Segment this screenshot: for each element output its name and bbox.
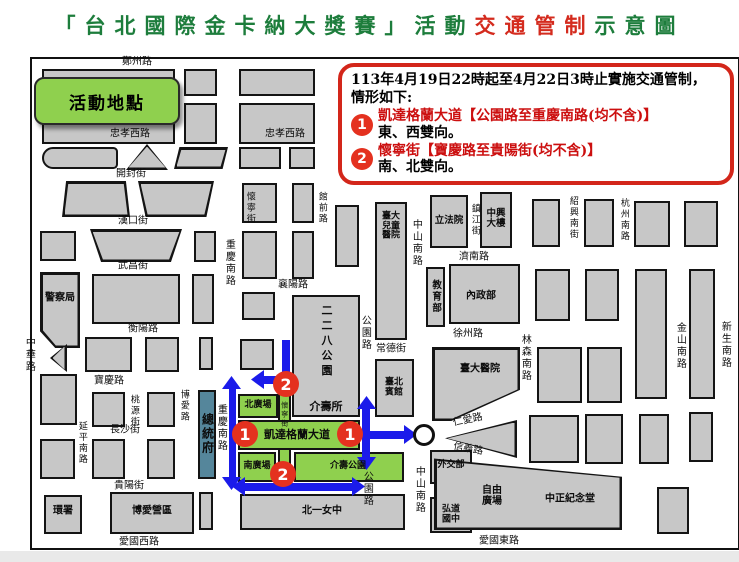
road-label: 金山南路 — [674, 322, 685, 370]
road-label: 博愛路 — [178, 390, 188, 423]
city-block — [40, 374, 77, 425]
city-block — [657, 487, 689, 534]
road-label: 桃源街 — [128, 395, 138, 428]
title-suffix: 示意圖 — [595, 13, 685, 38]
road-label: 寶慶路 — [94, 377, 124, 388]
building-label: 中正紀念堂 — [545, 495, 595, 506]
road-label: 懷寧街 — [280, 402, 288, 429]
road-label: 中山南路 — [413, 466, 424, 514]
city-block — [199, 492, 213, 530]
road-label: 徐州路 — [453, 330, 483, 341]
city-block — [535, 269, 570, 321]
building-label: 介壽公園 — [330, 462, 366, 472]
closure-arrow-south-shaft — [244, 483, 354, 491]
roundabout-icon — [413, 424, 435, 446]
city-block — [585, 269, 619, 321]
city-block — [587, 347, 622, 403]
page-title: 「台北國際金卡納大獎賽」活動交通管制示意圖 — [0, 10, 739, 40]
building-label: 中興大樓 — [483, 209, 509, 230]
city-block — [585, 414, 623, 464]
road-label: 貴陽街 — [114, 482, 144, 493]
notice-item-2-detail: 南、北雙向。 — [378, 159, 601, 176]
building-label: 內政部 — [466, 292, 496, 303]
city-block — [184, 69, 217, 96]
badge-1-icon: 1 — [351, 114, 373, 136]
city-block — [147, 392, 175, 427]
city-block — [138, 181, 214, 217]
road-label: 公園路 — [361, 471, 372, 507]
city-block — [145, 337, 179, 372]
road-label: 凱達格蘭大道 — [264, 429, 330, 441]
city-block — [239, 147, 281, 169]
window-bottom-strip — [0, 551, 739, 562]
city-block — [174, 147, 228, 169]
road-label: 鎮江街 — [469, 204, 479, 237]
building-label: 北一女中 — [302, 507, 342, 518]
building-label: 警察局 — [45, 294, 75, 305]
road-label: 重慶南路 — [215, 404, 226, 452]
city-block — [192, 274, 214, 324]
title-prefix: 「台北國際金卡納大獎賽」活動 — [55, 13, 475, 38]
city-block — [289, 147, 315, 169]
road-label: 林森南路 — [519, 334, 530, 382]
city-block — [242, 231, 277, 279]
map-canvas: 活動地點 113年4月19日22時起至4月22日3時止實施交通管制， 情形如下:… — [30, 57, 739, 550]
road-label: 懷寧街 — [244, 192, 254, 225]
traffic-control-page: 「台北國際金卡納大獎賽」活動交通管制示意圖 活動地點 113年4月19日22時起… — [0, 0, 739, 562]
city-block — [242, 292, 275, 320]
city-block — [684, 201, 718, 247]
notice-item-1: 1 凱達格蘭大道【公園路至重慶南路(均不含)】 東、西雙向。 — [351, 108, 721, 142]
road-label: 中華路 — [23, 337, 34, 373]
road-label: 開封街 — [116, 170, 146, 181]
road-label: 愛國西路 — [119, 538, 159, 549]
badge-2-icon: 2 — [351, 148, 373, 170]
city-block — [50, 344, 67, 372]
title-highlight: 交通管制 — [475, 13, 595, 38]
city-block — [40, 272, 80, 348]
city-block — [292, 231, 314, 279]
building-label: 臺北賓館 — [381, 378, 407, 397]
city-block — [239, 69, 315, 96]
legend-label: 活動地點 — [69, 89, 145, 114]
city-block — [62, 181, 130, 217]
building-label: 教育部 — [430, 280, 440, 315]
city-block — [689, 412, 713, 462]
building-label: 弘道國中 — [438, 505, 464, 524]
road-label: 忠孝西路 — [265, 130, 305, 141]
city-block — [529, 415, 579, 463]
road-label: 新生南路 — [719, 321, 730, 369]
city-block — [639, 414, 669, 464]
road-label: 鄭州路 — [122, 58, 152, 69]
city-block — [689, 269, 715, 399]
road-label: 愛國東路 — [479, 537, 519, 548]
notice-line1: 113年4月19日22時起至4月22日3時止實施交通管制， — [351, 72, 721, 90]
notice-item-2-road: 懷寧街【寶慶路至貴陽街(均不含)】 — [378, 143, 601, 160]
road-label: 公園路 — [359, 315, 370, 351]
arrow-up-icon — [222, 376, 241, 389]
building-label: 環署 — [53, 507, 73, 518]
city-block — [532, 199, 560, 247]
city-block — [194, 231, 216, 262]
city-block — [537, 347, 582, 403]
building-label: 自由廣場 — [479, 486, 505, 508]
city-block — [40, 439, 75, 479]
building-label: 南廣場 — [243, 462, 270, 472]
road-label: 重慶南路 — [223, 239, 234, 287]
closure-badge-2-icon: 2 — [273, 371, 299, 397]
road-label: 常德街 — [376, 345, 406, 356]
road-label: 濟南路 — [459, 253, 489, 264]
city-block — [335, 205, 359, 267]
building-label: 立法院 — [435, 216, 464, 226]
building-label: 臺大醫院 — [460, 365, 500, 376]
city-block — [240, 339, 274, 370]
building-label: 外交部 — [437, 461, 464, 471]
city-block — [90, 229, 182, 262]
road-label: 武昌街 — [118, 262, 148, 273]
road-label: 衡陽路 — [128, 325, 158, 336]
city-block — [147, 439, 175, 479]
building-label: 北廣場 — [244, 401, 271, 411]
city-block — [432, 347, 520, 421]
notice-item-2: 2 懷寧街【寶慶路至貴陽街(均不含)】 南、北雙向。 — [351, 143, 721, 177]
closure-badge-1-icon: 1 — [232, 421, 258, 447]
building-label: 介壽所 — [310, 401, 343, 413]
city-block — [126, 144, 168, 170]
city-block — [634, 201, 670, 247]
road-label: 漢口街 — [118, 217, 148, 228]
city-block — [92, 439, 125, 479]
city-block — [40, 231, 76, 261]
city-block — [92, 392, 125, 427]
notice-item-1-road: 凱達格蘭大道【公園路至重慶南路(均不含)】 — [378, 108, 657, 125]
closure-badge-1-icon: 1 — [337, 421, 363, 447]
arrow-left-icon — [251, 370, 264, 389]
building-label: 二二八公園 — [320, 305, 332, 380]
road-label: 延平南路 — [76, 421, 86, 465]
closure-badge-2-icon: 2 — [270, 461, 296, 487]
city-block — [635, 269, 667, 399]
city-block — [85, 337, 132, 372]
city-block — [92, 274, 180, 324]
city-block — [199, 337, 213, 370]
road-label: 館前路 — [316, 192, 326, 225]
traffic-control-notice: 113年4月19日22時起至4月22日3時止實施交通管制， 情形如下: 1 凱達… — [338, 63, 734, 185]
road-label: 忠孝西路 — [110, 130, 150, 141]
notice-line2: 情形如下: — [351, 90, 721, 108]
city-block — [584, 199, 614, 247]
city-block — [292, 183, 314, 223]
city-block — [184, 103, 217, 144]
road-label: 紹興南街 — [567, 196, 577, 240]
building-label: 臺大兒童醫院 — [379, 212, 403, 241]
notice-item-1-detail: 東、西雙向。 — [378, 125, 657, 142]
city-block — [42, 147, 118, 169]
legend-activity-location: 活動地點 — [34, 77, 180, 125]
road-label: 杭州南路 — [618, 198, 628, 242]
building-label: 總統府 — [201, 413, 214, 455]
road-label: 中山南路 — [410, 219, 421, 267]
building-label: 博愛營區 — [132, 507, 172, 518]
road-label: 襄陽路 — [278, 281, 308, 292]
